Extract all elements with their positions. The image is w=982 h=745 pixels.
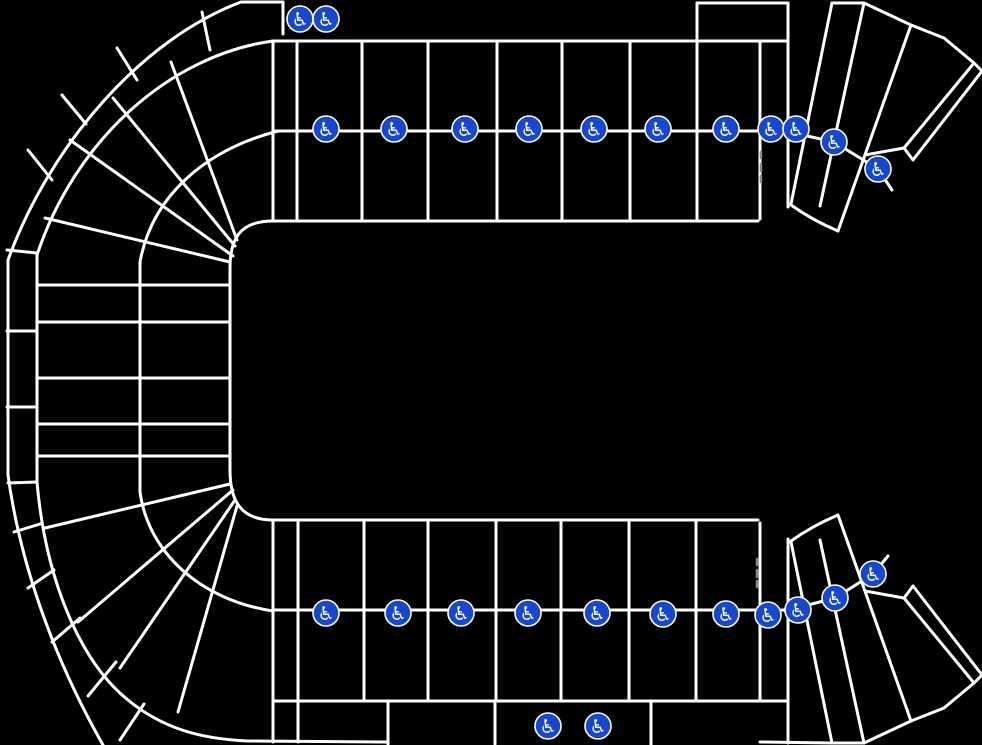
wheelchair-symbol: ♿: [762, 119, 779, 141]
wheelchair-icon[interactable]: ♿: [585, 713, 611, 739]
wheelchair-symbol: ♿: [588, 603, 605, 625]
wheelchair-icon[interactable]: ♿: [313, 6, 339, 32]
wheelchair-icon[interactable]: ♿: [581, 116, 607, 142]
bottom-fan-radial: [838, 515, 911, 721]
wheelchair-icon[interactable]: ♿: [645, 116, 671, 142]
wheelchair-symbol: ♿: [520, 119, 537, 141]
wheelchair-symbol: ♿: [585, 119, 602, 141]
wheelchair-icon[interactable]: ♿: [785, 597, 811, 623]
bottom-fan-apex-arc: [791, 515, 838, 541]
wheelchair-icon[interactable]: ♿: [515, 600, 541, 626]
wheelchair-symbol: ♿: [539, 716, 556, 738]
wheelchair-symbol: ♿: [291, 9, 308, 31]
floor-left-boundary: [230, 221, 273, 520]
top-fan-outer-edge: [864, 3, 974, 63]
seating-map-canvas[interactable]: ♿♿♿♿♿♿♿♿♿♿♿♿♿♿♿♿♿♿♿♿♿♿♿♿♿♿: [0, 0, 982, 745]
wheelchair-icon[interactable]: ♿: [516, 116, 542, 142]
bowl-spoke: [70, 140, 233, 256]
wheelchair-icon[interactable]: ♿: [385, 600, 411, 626]
wheelchair-symbol: ♿: [869, 159, 886, 181]
bowl-spoke: [178, 506, 237, 712]
bottom-fan-outer-edge: [864, 683, 974, 743]
wheelchair-symbol: ♿: [317, 119, 334, 141]
wheelchair-icon[interactable]: ♿: [865, 156, 891, 182]
bowl-spoke: [45, 218, 230, 262]
wheelchair-icon[interactable]: ♿: [535, 713, 561, 739]
wheelchair-icon[interactable]: ♿: [713, 601, 739, 627]
wheelchair-symbol: ♿: [654, 604, 671, 626]
bowl-spoke: [120, 500, 235, 668]
wheelchair-icon[interactable]: ♿: [452, 116, 478, 142]
top-fan-inner-edge: [865, 148, 904, 155]
wheelchair-icon[interactable]: ♿: [758, 116, 784, 142]
wheelchair-icon[interactable]: ♿: [822, 585, 848, 611]
wheelchair-symbol: ♿: [826, 588, 843, 610]
outer-ring-divider: [62, 95, 86, 124]
wheelchair-icon[interactable]: ♿: [650, 601, 676, 627]
top-fan-apex-arc: [791, 205, 838, 231]
wheelchair-icon[interactable]: ♿: [860, 561, 886, 587]
wheelchair-icon[interactable]: ♿: [584, 600, 610, 626]
wheelchair-icon[interactable]: ♿: [783, 116, 809, 142]
wheelchair-symbol: ♿: [589, 716, 606, 738]
seating-map-stage: ♿♿♿♿♿♿♿♿♿♿♿♿♿♿♿♿♿♿♿♿♿♿♿♿♿♿: [0, 0, 982, 745]
wheelchair-symbol: ♿: [864, 564, 881, 586]
wheelchair-icon[interactable]: ♿: [448, 600, 474, 626]
wheelchair-symbol: ♿: [317, 603, 334, 625]
wheelchair-icon[interactable]: ♿: [287, 6, 313, 32]
top-fan-radial: [838, 25, 911, 231]
wheelchair-icon[interactable]: ♿: [821, 129, 847, 155]
wheelchair-symbol: ♿: [825, 132, 842, 154]
top-fan-corner-section: [904, 63, 982, 160]
wheelchair-symbol: ♿: [759, 605, 776, 627]
wheelchair-icon[interactable]: ♿: [755, 602, 781, 628]
wheelchair-symbol: ♿: [787, 119, 804, 141]
outer-ring-divider: [28, 150, 52, 180]
wheelchair-icon[interactable]: ♿: [313, 116, 339, 142]
wheelchair-symbol: ♿: [389, 603, 406, 625]
wheelchair-icon[interactable]: ♿: [381, 116, 407, 142]
bowl-ring1-bottom-right: [760, 742, 864, 743]
bowl-spoke: [45, 484, 230, 528]
wheelchair-icon[interactable]: ♿: [313, 600, 339, 626]
wheelchair-symbol: ♿: [456, 119, 473, 141]
outer-ring-divider: [88, 662, 116, 696]
bottom-fan-inner-edge: [865, 591, 904, 598]
wheelchair-symbol: ♿: [519, 603, 536, 625]
outer-ring-divider: [120, 704, 144, 740]
wheelchair-symbol: ♿: [717, 119, 734, 141]
outer-ring-divider: [8, 482, 37, 483]
bowl-outer-boundary: [8, 2, 283, 745]
wheelchair-symbol: ♿: [317, 9, 334, 31]
wheelchair-symbol: ♿: [649, 119, 666, 141]
wheelchair-icon[interactable]: ♿: [713, 116, 739, 142]
wheelchair-symbol: ♿: [385, 119, 402, 141]
bowl-spoke: [113, 98, 235, 246]
bowl-ring1-boundary: [37, 41, 388, 742]
wheelchair-symbol: ♿: [717, 604, 734, 626]
wheelchair-symbol: ♿: [789, 600, 806, 622]
wheelchair-symbol: ♿: [452, 603, 469, 625]
bottom-fan-corner-section: [904, 586, 982, 683]
